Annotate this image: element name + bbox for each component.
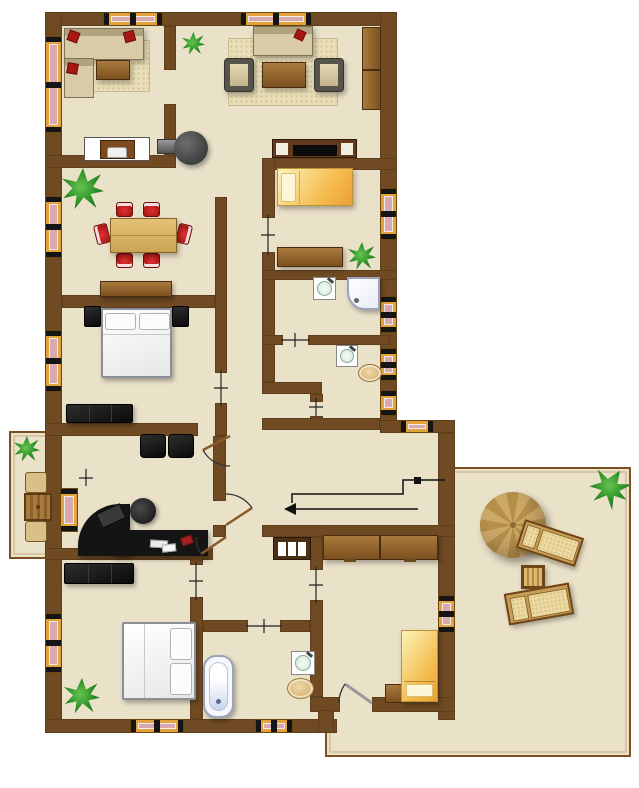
dining-chair <box>143 253 160 268</box>
coffee-table-1 <box>96 60 130 80</box>
floor-plan <box>0 0 639 788</box>
wardrobe-line <box>88 564 89 583</box>
shoe-rack-slot <box>288 542 296 556</box>
window-bottom-2 <box>255 719 293 733</box>
blanket-fold <box>144 624 145 698</box>
wall-right-lower <box>438 433 455 720</box>
dining-chair <box>116 202 133 217</box>
nightstand-right <box>172 306 189 327</box>
wall-bath1-wc-right <box>308 335 390 345</box>
pillow <box>406 684 433 697</box>
wall-office-right-a <box>213 436 226 501</box>
wall-stub <box>318 710 334 733</box>
sink-bath2 <box>291 651 315 675</box>
lounger-cushion <box>510 595 530 621</box>
wall-bedroom4-left-a <box>310 537 323 570</box>
window-top-2 <box>240 12 312 26</box>
wall-closet-bottom <box>262 418 380 430</box>
wall-corridor-left-a <box>215 197 227 373</box>
toilet-wc <box>358 364 382 382</box>
visitor-chair <box>140 434 166 458</box>
dining-table <box>110 218 177 253</box>
wall-office-right-b <box>213 525 226 537</box>
single-bed-4 <box>401 630 438 702</box>
wardrobe-living2 <box>362 27 381 110</box>
counter-divider <box>379 536 381 559</box>
balcony-chair <box>25 521 47 542</box>
dresser-dining <box>100 281 172 297</box>
wardrobe-bedroom3 <box>64 563 134 584</box>
red-pillow <box>66 62 79 75</box>
single-bed-2 <box>277 168 353 206</box>
armchair-left <box>224 58 254 92</box>
toilet-bath2 <box>287 678 314 699</box>
window-left-4 <box>45 613 62 673</box>
wall-bottom <box>45 719 337 733</box>
pillow <box>170 628 192 660</box>
table-center <box>36 505 40 509</box>
wall-corridor-left-b <box>215 403 227 436</box>
bed-frame-line <box>404 681 435 682</box>
shower <box>347 277 380 310</box>
window-right-1 <box>380 188 397 240</box>
balcony-table <box>24 493 52 521</box>
tv-cabinet-door <box>276 143 288 155</box>
tv-screen <box>293 145 337 156</box>
wardrobe-bedroom1 <box>66 404 133 423</box>
nightstand-left <box>84 306 101 327</box>
table-grain <box>111 235 176 236</box>
shoe-rack <box>273 537 311 560</box>
window-right-4 <box>380 390 397 416</box>
pillow <box>105 313 136 330</box>
blanket-fold <box>103 334 170 335</box>
bed-line <box>299 171 300 204</box>
sink-wc <box>336 345 358 367</box>
pillow <box>170 663 192 695</box>
wood-stove <box>174 131 208 165</box>
wall-wc-bottom <box>262 382 322 394</box>
pillow <box>281 173 296 202</box>
office-chair <box>130 498 156 524</box>
pillow <box>139 313 170 330</box>
dining-chair <box>143 202 160 217</box>
visitor-chair <box>168 434 194 458</box>
tv-cabinet <box>272 139 357 158</box>
wardrobe-divider <box>363 69 380 71</box>
counter-handle <box>344 559 356 562</box>
window-left-2 <box>45 196 62 258</box>
window-balcony-door <box>60 488 78 532</box>
dresser-bedroom2 <box>277 247 343 267</box>
sideboard-item <box>107 147 127 158</box>
wardrobe-line <box>111 405 112 422</box>
sideboard <box>84 137 150 161</box>
wall-bath2-top-left <box>203 620 248 632</box>
dining-chair <box>116 253 133 268</box>
lounger-cushion <box>527 588 571 619</box>
counter-handle <box>404 559 416 562</box>
double-bed-3 <box>122 622 196 700</box>
shoe-rack-slot <box>298 542 306 556</box>
nightstand-bedroom4 <box>385 684 402 703</box>
window-right-3 <box>380 348 397 381</box>
shoe-rack-slot <box>278 542 286 556</box>
wall-top <box>45 12 397 26</box>
wall-bath2-top-right <box>280 620 310 632</box>
window-left-3 <box>45 330 62 392</box>
sink-bath1 <box>313 277 336 300</box>
wardrobe-counter <box>323 535 438 560</box>
double-bed-1 <box>101 308 172 378</box>
armchair-right <box>314 58 344 92</box>
window-left-1 <box>45 36 62 133</box>
wall-living-divider-a <box>164 26 176 70</box>
wall-bath1-wc-left <box>262 335 283 345</box>
window-bottom-1 <box>130 719 184 733</box>
patio-side-table <box>521 565 545 589</box>
wall-column-left-a <box>262 158 275 218</box>
bathtub <box>203 655 234 718</box>
wardrobe-line <box>111 564 112 583</box>
window-entry <box>400 420 434 433</box>
wardrobe-line <box>89 405 90 422</box>
window-top-1 <box>103 12 163 26</box>
balcony-chair <box>25 472 47 493</box>
tv-cabinet-door <box>341 143 353 155</box>
window-right-5 <box>438 595 455 633</box>
coffee-table-2 <box>262 62 306 88</box>
wall-vestibule-a <box>310 394 323 402</box>
window-right-2 <box>380 296 397 333</box>
paper <box>162 543 177 552</box>
